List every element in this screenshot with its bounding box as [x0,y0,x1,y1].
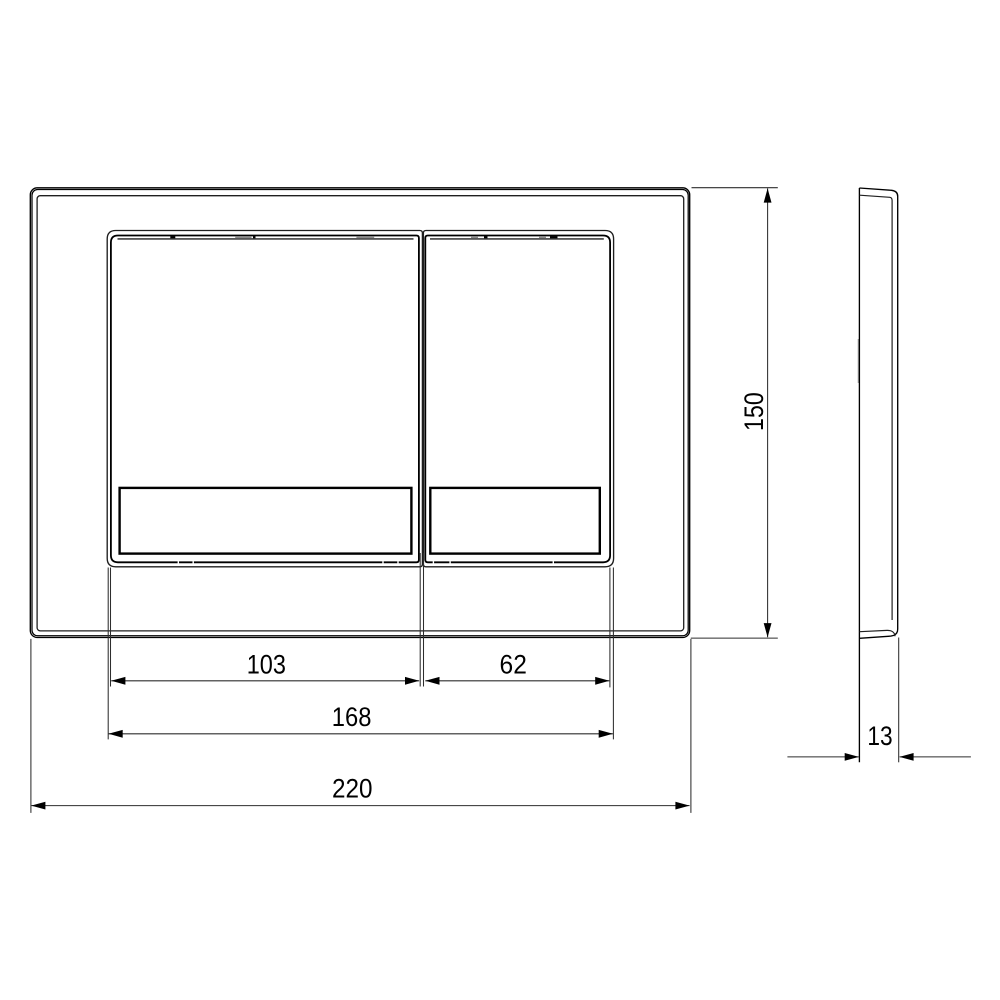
svg-text:62: 62 [500,651,527,680]
svg-text:13: 13 [867,722,892,751]
svg-text:168: 168 [332,703,372,732]
svg-text:103: 103 [247,650,286,680]
svg-text:220: 220 [332,775,373,804]
svg-text:150: 150 [739,392,769,431]
